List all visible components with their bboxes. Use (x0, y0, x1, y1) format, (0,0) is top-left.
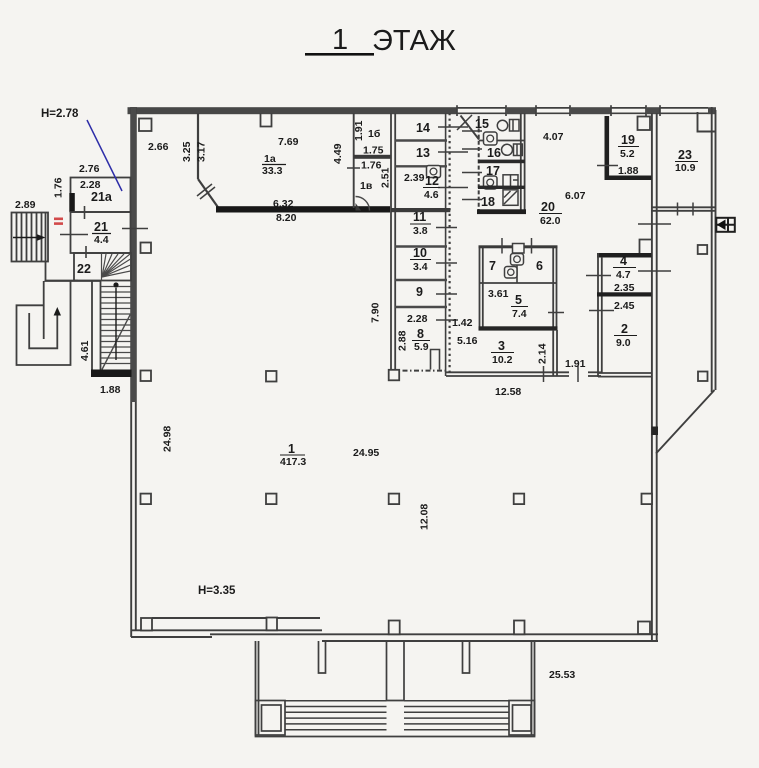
svg-text:1: 1 (288, 442, 295, 456)
svg-text:5.2: 5.2 (620, 148, 635, 160)
svg-text:4: 4 (620, 254, 627, 268)
svg-text:17: 17 (486, 164, 500, 178)
svg-text:7: 7 (489, 259, 496, 273)
svg-text:5.9: 5.9 (414, 341, 429, 353)
svg-text:10: 10 (413, 246, 427, 260)
svg-text:23: 23 (678, 148, 692, 162)
svg-text:4.4: 4.4 (94, 234, 109, 246)
svg-text:1.76: 1.76 (361, 160, 382, 172)
svg-text:20: 20 (541, 200, 555, 214)
svg-text:10.9: 10.9 (675, 162, 696, 174)
svg-text:21а: 21а (91, 190, 113, 204)
svg-text:2.51: 2.51 (380, 167, 392, 188)
svg-text:3.61: 3.61 (488, 288, 509, 300)
svg-text:ЭТАЖ: ЭТАЖ (372, 25, 456, 57)
svg-text:1.76: 1.76 (53, 177, 65, 198)
svg-text:Н=3.35: Н=3.35 (198, 585, 236, 597)
svg-text:5: 5 (515, 293, 522, 307)
svg-text:14: 14 (416, 121, 430, 135)
svg-text:2.89: 2.89 (15, 199, 36, 211)
svg-text:21: 21 (94, 220, 108, 234)
svg-text:3.4: 3.4 (413, 261, 428, 273)
svg-text:8: 8 (417, 327, 424, 341)
svg-text:9: 9 (416, 285, 423, 299)
svg-text:1.88: 1.88 (618, 165, 639, 177)
svg-text:1б: 1б (368, 128, 381, 140)
svg-text:3.8: 3.8 (413, 225, 428, 237)
svg-text:15: 15 (475, 117, 489, 131)
svg-text:4.07: 4.07 (543, 131, 564, 143)
svg-text:22: 22 (77, 262, 91, 276)
svg-text:1.88: 1.88 (100, 384, 121, 396)
svg-text:5.16: 5.16 (457, 335, 478, 347)
svg-text:7.69: 7.69 (278, 136, 299, 148)
svg-text:3.25: 3.25 (181, 141, 193, 162)
svg-text:19: 19 (621, 133, 635, 147)
svg-text:25.53: 25.53 (549, 669, 575, 681)
svg-text:1.91: 1.91 (565, 358, 586, 370)
svg-text:3: 3 (498, 339, 505, 353)
svg-text:2.45: 2.45 (614, 300, 635, 312)
svg-text:1.42: 1.42 (452, 317, 473, 329)
svg-text:11: 11 (413, 210, 426, 224)
svg-text:Н=2.78: Н=2.78 (41, 108, 79, 120)
svg-text:6.32: 6.32 (273, 198, 294, 210)
svg-text:4.6: 4.6 (424, 189, 439, 201)
svg-text:4.49: 4.49 (332, 143, 344, 164)
svg-text:2.28: 2.28 (80, 179, 101, 191)
svg-text:6: 6 (536, 259, 543, 273)
svg-text:8.20: 8.20 (276, 212, 297, 224)
svg-text:24.95: 24.95 (353, 447, 379, 459)
svg-text:1в: 1в (360, 180, 373, 192)
svg-text:33.3: 33.3 (262, 165, 283, 177)
svg-text:2.14: 2.14 (537, 343, 549, 364)
svg-text:2.88: 2.88 (397, 330, 409, 351)
svg-text:7.90: 7.90 (370, 302, 382, 323)
svg-text:12.08: 12.08 (419, 504, 431, 530)
svg-text:2.35: 2.35 (614, 282, 635, 294)
svg-text:12.58: 12.58 (495, 386, 521, 398)
svg-text:2.28: 2.28 (407, 313, 428, 325)
svg-text:2.76: 2.76 (79, 163, 100, 175)
svg-text:10.2: 10.2 (492, 354, 513, 366)
svg-text:16: 16 (487, 146, 501, 160)
svg-text:1а: 1а (264, 153, 276, 165)
svg-text:9.0: 9.0 (616, 337, 631, 349)
svg-text:1.75: 1.75 (363, 145, 384, 157)
svg-text:24.98: 24.98 (162, 426, 174, 452)
svg-text:7.4: 7.4 (512, 308, 527, 320)
svg-text:13: 13 (416, 146, 430, 160)
svg-text:4.7: 4.7 (616, 269, 631, 281)
svg-text:417.3: 417.3 (280, 456, 306, 468)
svg-text:12: 12 (425, 174, 439, 188)
svg-text:4.61: 4.61 (79, 340, 91, 361)
svg-text:2.39: 2.39 (404, 172, 425, 184)
svg-text:2: 2 (621, 322, 628, 336)
svg-text:1: 1 (332, 24, 348, 56)
svg-text:1.91: 1.91 (353, 120, 365, 141)
svg-text:6.07: 6.07 (565, 190, 586, 202)
svg-text:2.66: 2.66 (148, 141, 169, 153)
svg-text:62.0: 62.0 (540, 215, 561, 227)
svg-text:3.17: 3.17 (196, 141, 208, 162)
svg-text:18: 18 (481, 195, 495, 209)
